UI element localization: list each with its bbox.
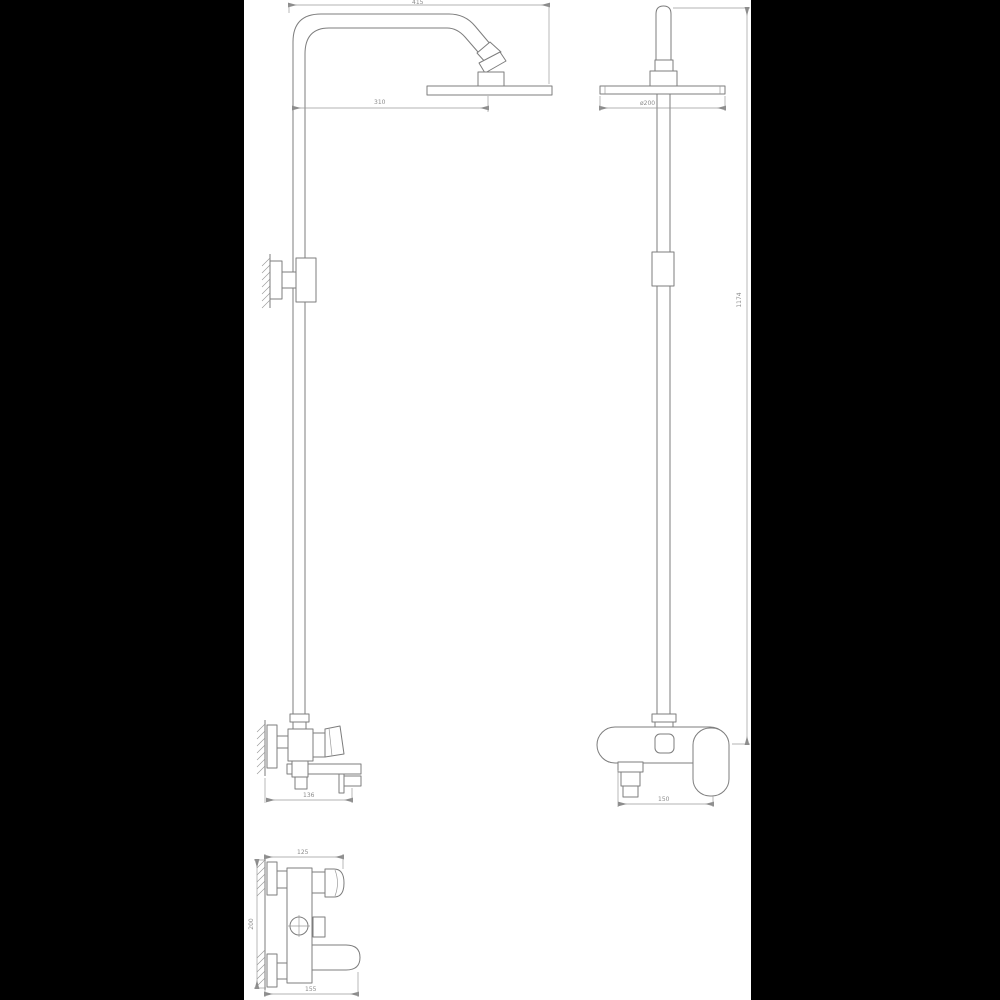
- hose-outlet-step3: [623, 786, 638, 797]
- spout-hanger-side: [339, 774, 344, 793]
- handle-plan: [312, 869, 344, 897]
- side-view: 415 310: [257, 0, 552, 803]
- mixer-front-view: 150: [597, 714, 729, 807]
- hose-outlet-step1: [618, 762, 643, 772]
- bracket-wall-plate: [270, 261, 282, 299]
- bracket-clamp: [296, 258, 316, 302]
- head-connector-front-lower: [650, 71, 677, 86]
- dim-mixer-depth-label: 136: [303, 792, 315, 799]
- handle-lever-side: [325, 726, 344, 757]
- mixer-stem-side: [277, 736, 288, 748]
- pipe-nut-side: [290, 714, 309, 722]
- mixer-body-side: [288, 729, 313, 761]
- dim-detail-depth-label: 125: [297, 849, 309, 856]
- technical-drawing-page: 415 310: [0, 0, 1000, 1000]
- riser-pipe-front: [657, 94, 670, 714]
- pipe-nut-front: [652, 714, 676, 722]
- bracket-stem: [282, 272, 296, 288]
- ball-joint: [477, 42, 506, 73]
- wall-hatching-bracket: [262, 258, 270, 308]
- handle-front: [693, 728, 729, 796]
- wall-hatching-mixer: [257, 724, 265, 774]
- wall-bracket: [262, 254, 316, 308]
- riser-pipe-side: [293, 110, 305, 714]
- dim-mixer-width-label: 150: [658, 796, 670, 803]
- wall-hatching-detail: [257, 860, 265, 986]
- dim-overall-height: 1174: [673, 8, 750, 744]
- dim-detail-height: 200: [248, 860, 266, 988]
- hose-outlet-step2: [621, 772, 640, 786]
- dim-detail-width-label: 155: [305, 986, 317, 993]
- shower-head-side: [427, 86, 552, 95]
- detail-plan-view: 125 200 155: [248, 849, 360, 997]
- shower-arm: [293, 14, 491, 112]
- dim-arm-reach-label: 310: [374, 99, 386, 106]
- telescopic-connector: [652, 252, 674, 286]
- dim-arm-length: 415: [289, 0, 549, 84]
- dim-head-diameter: ø200: [600, 96, 725, 111]
- head-connector-front-upper: [655, 60, 673, 71]
- front-view: ø200 1174: [597, 6, 750, 807]
- pipe-top-cap: [656, 6, 671, 60]
- dim-head-diameter-label: ø200: [640, 100, 655, 107]
- diverter-button-front: [655, 734, 674, 753]
- spout-end-side: [344, 776, 361, 786]
- outlet-step2-side: [295, 777, 307, 789]
- diverter-plan: [313, 917, 325, 937]
- mixer-wall-plate-side: [267, 725, 277, 768]
- dim-arm-length-label: 415: [412, 0, 424, 6]
- shower-system-technical-drawing: 415 310: [0, 0, 1000, 1000]
- mixer-side-view: 136: [257, 714, 361, 803]
- head-connector-side: [478, 72, 504, 86]
- shower-head-front: [600, 86, 725, 94]
- dim-arm-reach: 310: [293, 96, 488, 112]
- handle-hub-side: [313, 733, 325, 757]
- outlet-step1-side: [292, 761, 308, 777]
- dim-overall-height-label: 1174: [736, 292, 743, 307]
- dim-detail-height-label: 200: [248, 918, 255, 930]
- spout-plan: [312, 945, 360, 970]
